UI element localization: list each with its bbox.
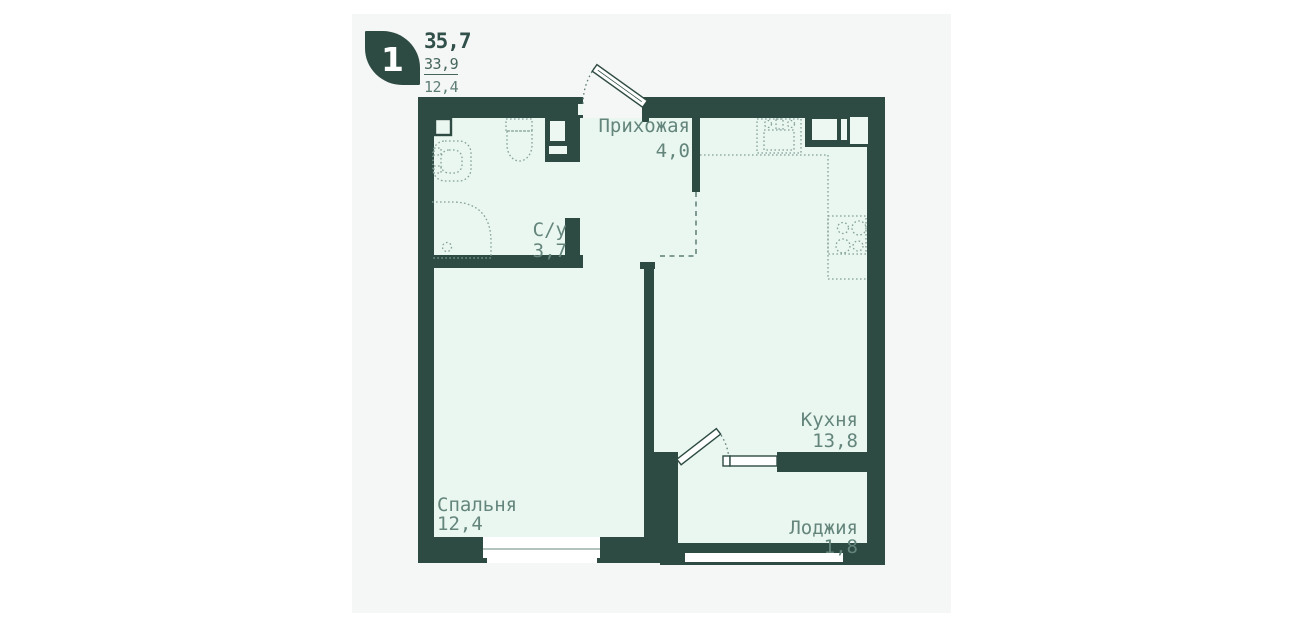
room-area-loggia: 1,8 bbox=[824, 536, 858, 558]
room-area-kitchen: 13,8 bbox=[812, 430, 858, 452]
room-area-bathroom: 3,7 bbox=[533, 240, 567, 262]
room-area-bedroom: 12,4 bbox=[437, 513, 483, 535]
floor-plan: Прихожая 4,0 С/у 3,7 Кухня 13,8 Спальня … bbox=[0, 0, 1301, 630]
page-background: { "header": { "rooms_count": "1", "total… bbox=[0, 0, 1301, 630]
window-loggia bbox=[685, 553, 843, 562]
room-label-bathroom: С/у bbox=[533, 219, 567, 241]
room-label-kitchen: Кухня bbox=[801, 409, 858, 431]
vent-box bbox=[435, 119, 451, 135]
room-label-hallway: Прихожая bbox=[598, 115, 690, 137]
window-kitchen-frame bbox=[723, 456, 730, 466]
window-kitchen bbox=[730, 456, 777, 466]
entrance-door bbox=[583, 65, 647, 108]
window-bedroom bbox=[483, 537, 600, 563]
room-area-hallway: 4,0 bbox=[656, 140, 690, 162]
